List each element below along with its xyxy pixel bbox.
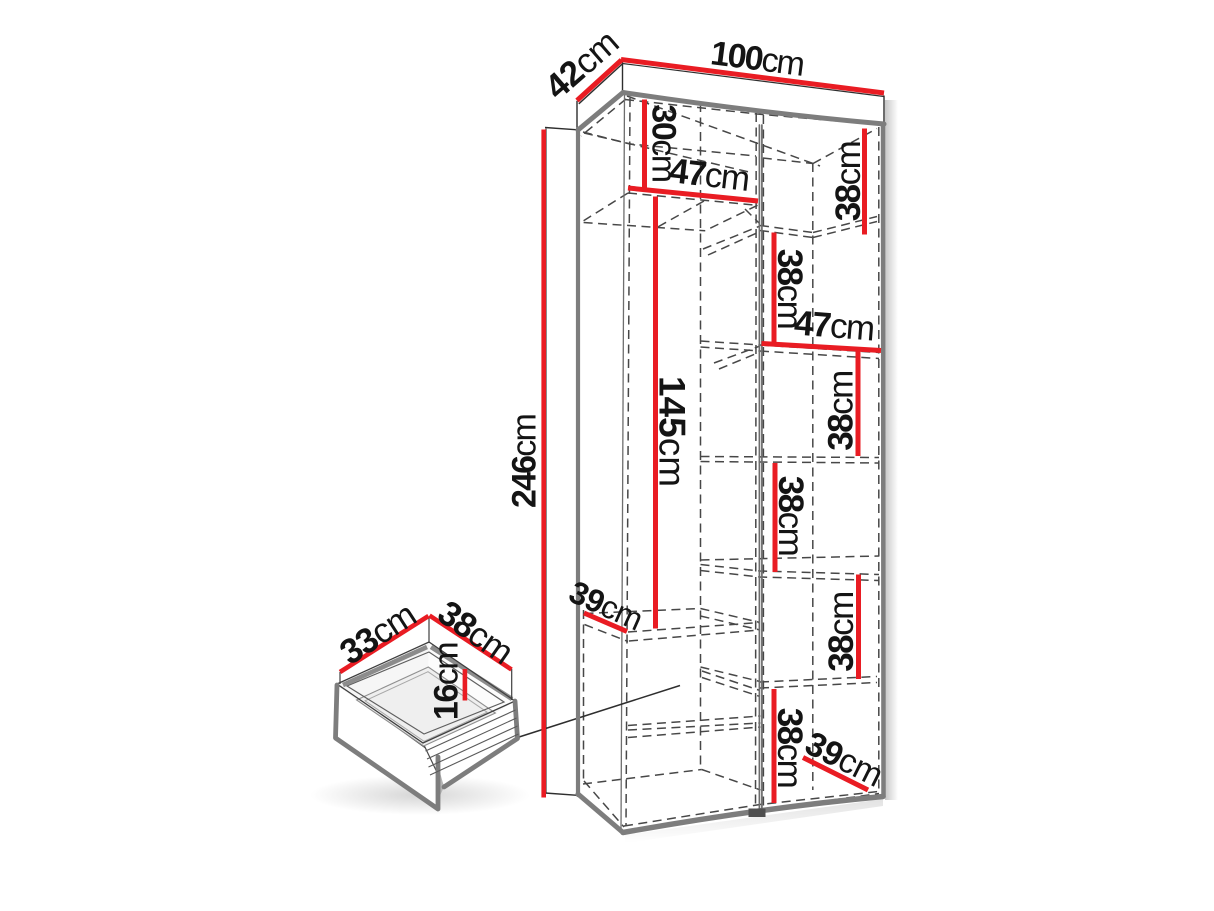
svg-text:38cm: 38cm: [822, 592, 861, 672]
svg-text:38cm: 38cm: [829, 142, 868, 222]
svg-text:16cm: 16cm: [428, 643, 466, 720]
svg-text:38cm: 38cm: [821, 371, 860, 451]
svg-text:38cm: 38cm: [772, 476, 811, 556]
svg-text:145cm: 145cm: [652, 376, 693, 487]
svg-text:47cm: 47cm: [793, 303, 875, 348]
svg-text:39cm: 39cm: [799, 724, 889, 794]
svg-text:246cm: 246cm: [506, 415, 544, 509]
